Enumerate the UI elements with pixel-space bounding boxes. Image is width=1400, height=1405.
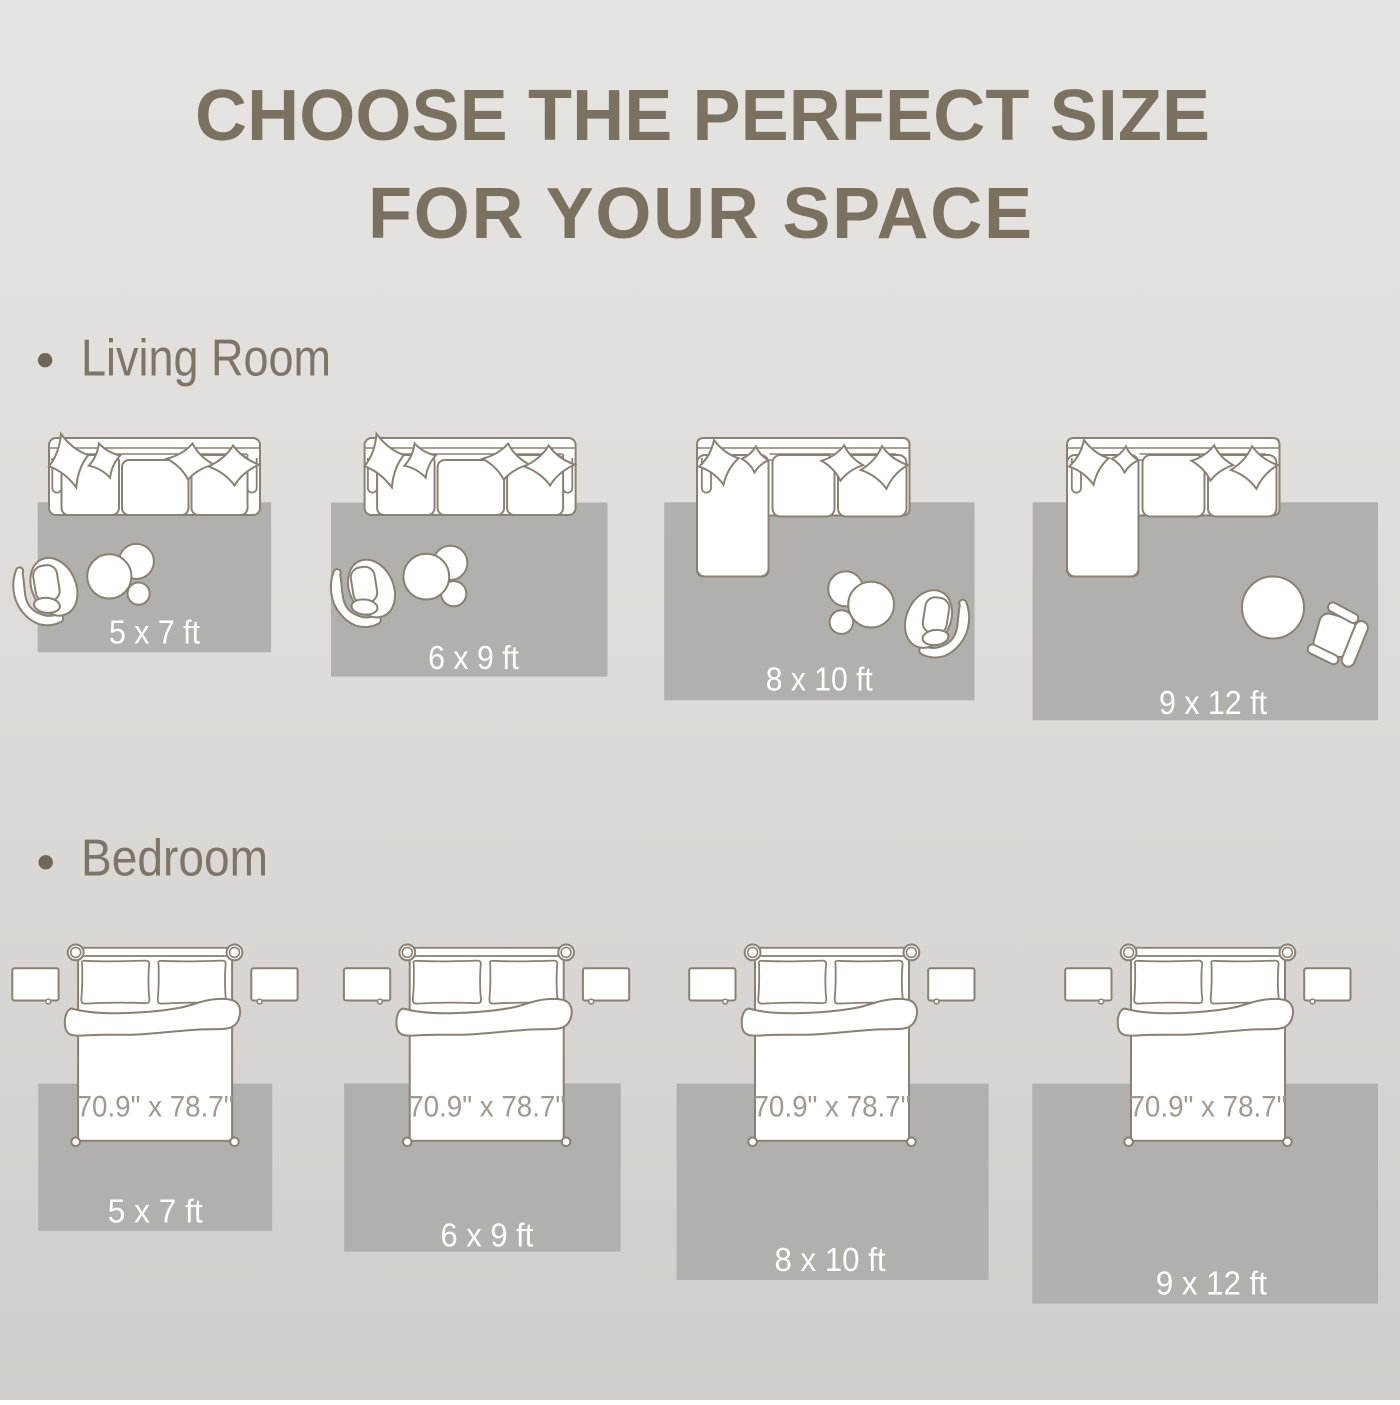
svg-text:6 x 9 ft: 6 x 9 ft <box>440 1217 533 1254</box>
svg-text:9 x 12 ft: 9 x 12 ft <box>1156 1265 1267 1302</box>
svg-text:70.9" x 78.7": 70.9" x 78.7" <box>408 1091 565 1124</box>
svg-text:8 x 10 ft: 8 x 10 ft <box>775 1241 886 1278</box>
svg-text:8 x 10 ft: 8 x 10 ft <box>766 660 873 697</box>
svg-text:70.9" x 78.7": 70.9" x 78.7" <box>1130 1091 1287 1124</box>
svg-text:Bedroom: Bedroom <box>81 830 268 888</box>
svg-text:9 x 12 ft: 9 x 12 ft <box>1159 684 1267 721</box>
svg-text:5 x 7 ft: 5 x 7 ft <box>109 614 200 651</box>
svg-text:5 x 7 ft: 5 x 7 ft <box>108 1193 203 1230</box>
svg-text:Living Room: Living Room <box>81 330 331 388</box>
svg-text:6 x 9 ft: 6 x 9 ft <box>428 639 519 676</box>
svg-text:70.9" x 78.7": 70.9" x 78.7" <box>77 1091 234 1124</box>
svg-text:FOR YOUR SPACE: FOR YOUR SPACE <box>368 174 1032 254</box>
svg-text:CHOOSE THE PERFECT SIZE: CHOOSE THE PERFECT SIZE <box>195 76 1210 156</box>
svg-text:70.9" x 78.7": 70.9" x 78.7" <box>754 1091 911 1124</box>
